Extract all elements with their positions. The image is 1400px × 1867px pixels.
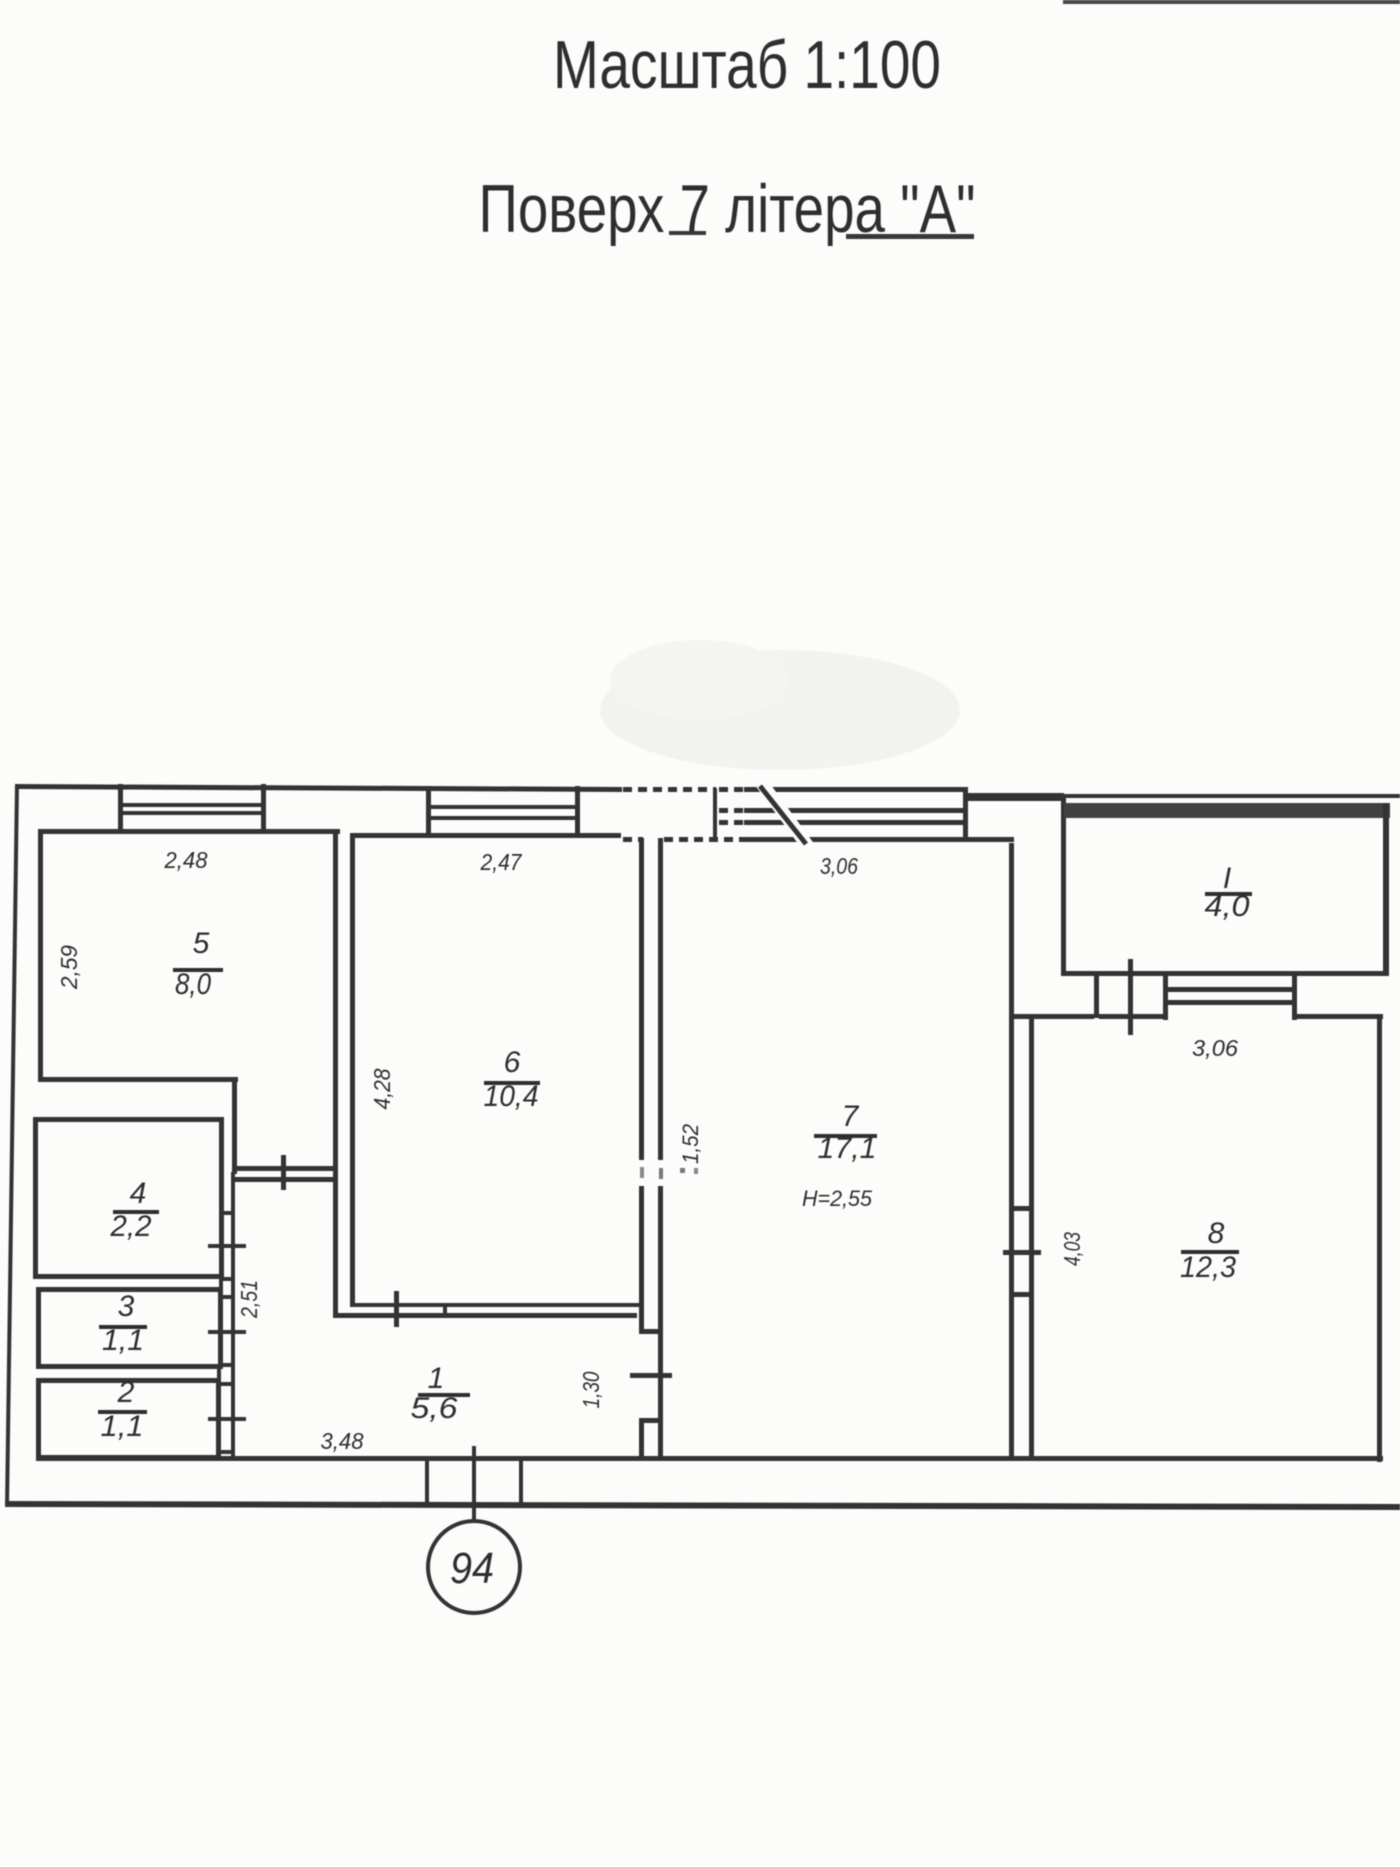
svg-text:4: 4 [130,1177,147,1210]
svg-text:2,51: 2,51 [236,1280,262,1319]
svg-text:5: 5 [193,927,210,960]
svg-text:2,47: 2,47 [480,849,523,875]
svg-text:5,6: 5,6 [411,1392,458,1425]
svg-text:3,48: 3,48 [321,1428,364,1454]
svg-text:1,52: 1,52 [678,1124,703,1164]
svg-text:Масштаб 1:100: Масштаб 1:100 [553,27,941,103]
svg-text:94: 94 [450,1544,494,1593]
svg-text:1,1: 1,1 [102,1324,144,1357]
svg-text:2,48: 2,48 [164,847,208,873]
svg-text:3,06: 3,06 [820,853,858,879]
svg-text:10,4: 10,4 [484,1080,539,1113]
svg-text:2,2: 2,2 [110,1210,152,1243]
svg-text:7: 7 [842,1100,860,1133]
svg-text:3: 3 [118,1290,135,1323]
svg-text:4,03: 4,03 [1059,1232,1085,1266]
svg-text:2: 2 [117,1376,135,1409]
svg-text:17,1: 17,1 [818,1132,877,1165]
svg-text:8,0: 8,0 [175,968,211,1001]
svg-text:1,1: 1,1 [101,1410,144,1443]
svg-text:1,30: 1,30 [578,1371,604,1408]
svg-text:4,28: 4,28 [369,1068,395,1109]
svg-text:1: 1 [428,1362,445,1395]
svg-text:H=2,55: H=2,55 [802,1186,873,1211]
svg-text:12,3: 12,3 [1180,1251,1236,1284]
svg-text:8: 8 [1208,1217,1225,1250]
svg-text:2,59: 2,59 [56,945,82,990]
svg-text:4,0: 4,0 [1205,890,1250,923]
svg-text:6: 6 [504,1046,521,1079]
svg-text:3,06: 3,06 [1192,1035,1238,1061]
